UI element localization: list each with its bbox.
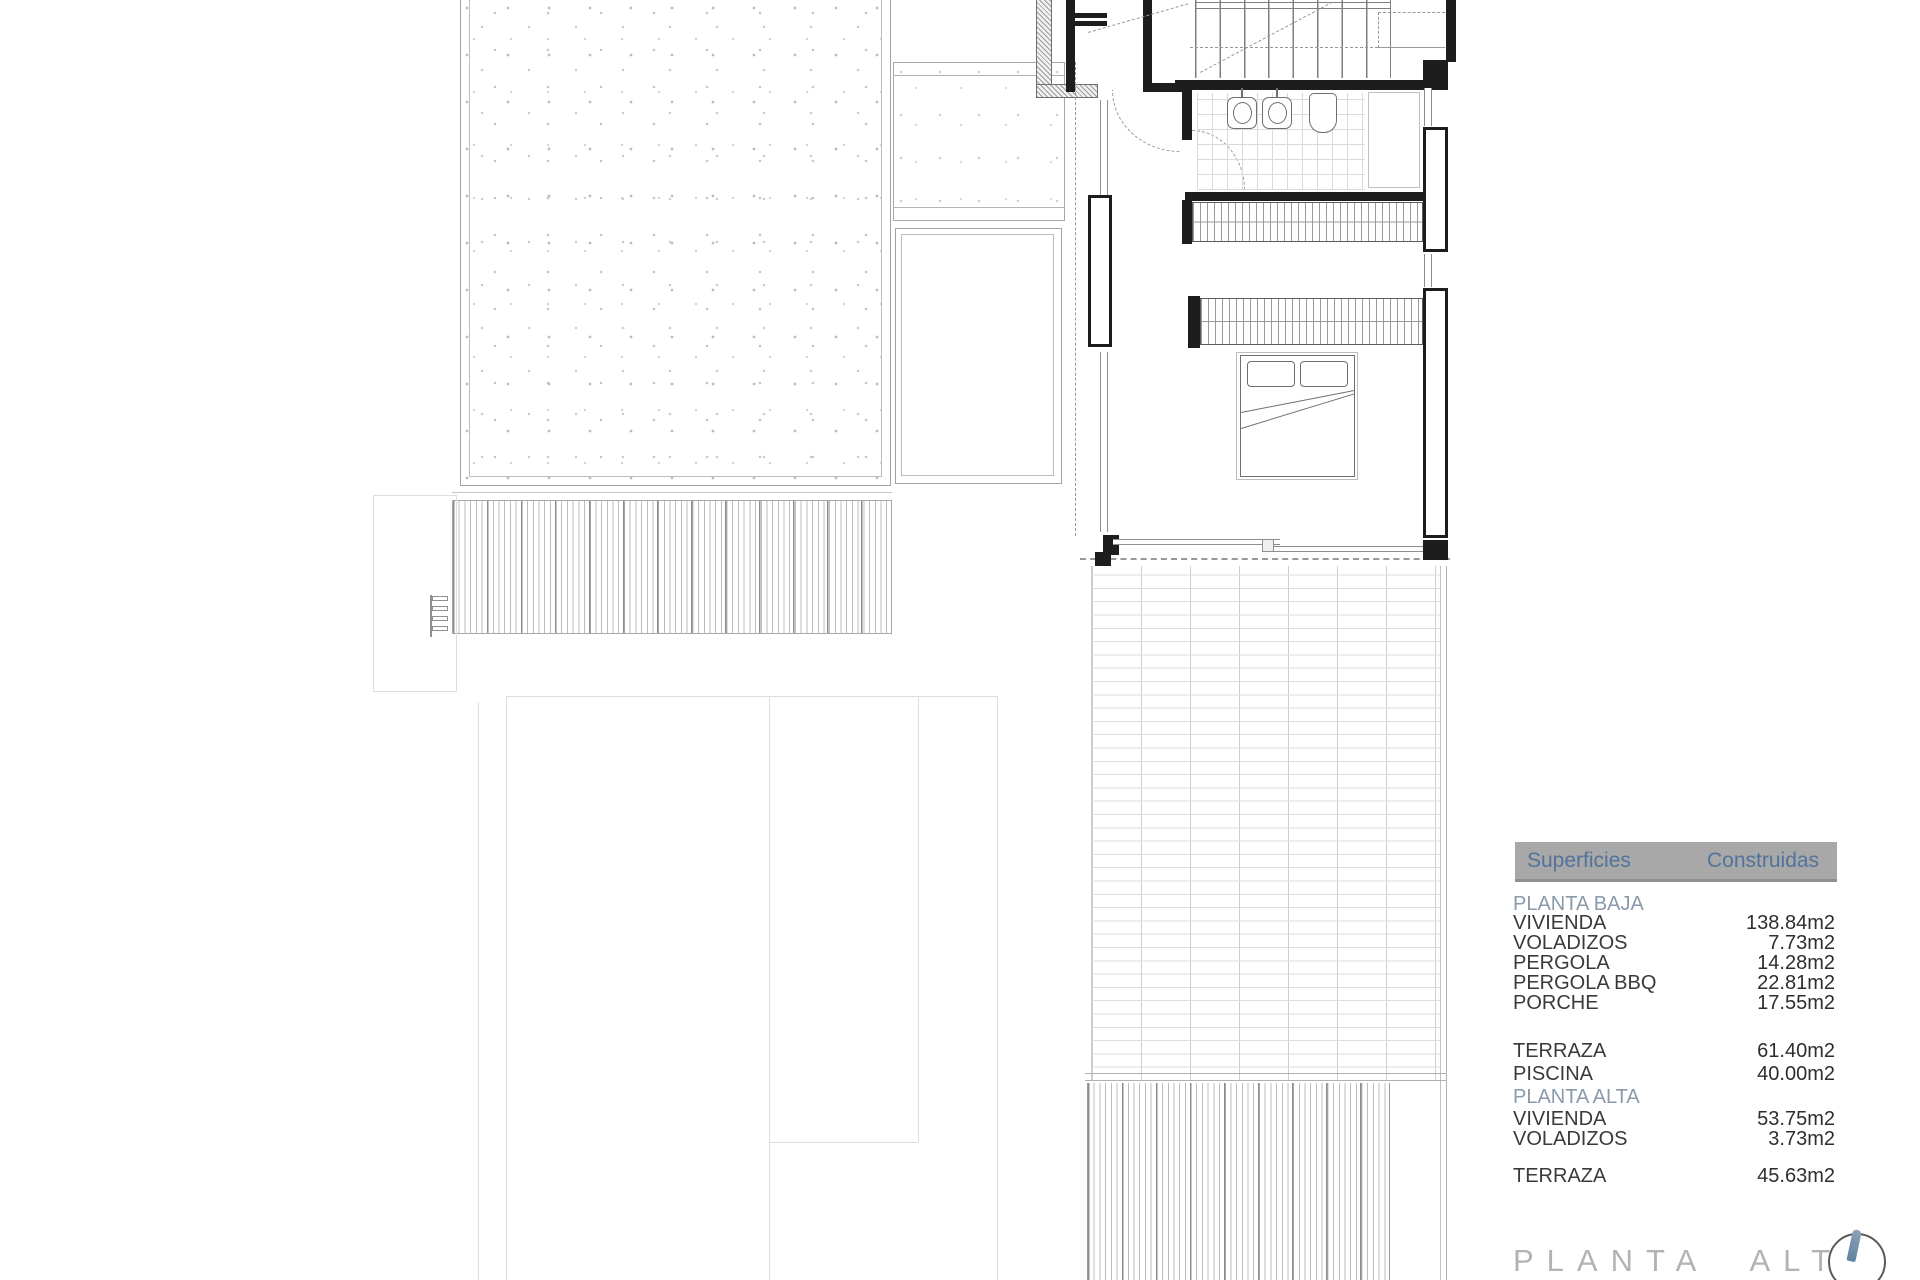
table-row: TERRAZA 45.63m2 [1513, 1165, 1837, 1185]
window-glazing [1424, 254, 1432, 287]
pergola-slats [452, 500, 892, 634]
stair-treads [1195, 0, 1391, 78]
surfaces-table-header: Superficies Construidas [1515, 842, 1837, 882]
wall [1182, 80, 1192, 140]
plan-title: PLANTA ALTA [1513, 1243, 1874, 1279]
terrace-edge [1440, 1081, 1447, 1280]
ground-floor-outline [769, 696, 770, 1280]
stair-void-outline [1378, 12, 1450, 48]
row-value: 17.55m2 [1757, 992, 1835, 1015]
terrace-overhang-dashed [1080, 558, 1450, 560]
wall [1188, 296, 1200, 348]
wall [1423, 60, 1448, 85]
overhang-dashed-line [1075, 62, 1076, 536]
wall [1185, 192, 1423, 201]
table-row: VOLADIZOS 3.73m2 [1513, 1128, 1837, 1148]
table-row: PERGOLA 14.28m2 [1513, 952, 1837, 972]
surfaces-column-label: Superficies [1527, 842, 1631, 879]
wall [1182, 200, 1192, 244]
row-label: TERRAZA [1513, 1165, 1606, 1188]
window-glazing [1100, 352, 1108, 532]
ground-floor-outline [918, 696, 919, 1142]
table-row: PERGOLA BBQ 22.81m2 [1513, 972, 1837, 992]
roof-break-line [1088, 3, 1188, 33]
ground-floor-outline [769, 1142, 918, 1143]
terrace-edge [1440, 566, 1447, 1081]
window-glazing [1424, 88, 1432, 126]
sliding-door-overlap [1262, 539, 1274, 552]
sink-tap [1276, 88, 1278, 97]
row-label: PLANTA ALTA [1513, 1086, 1640, 1109]
canopy-line-bottom [893, 207, 1065, 208]
sink [1227, 97, 1257, 129]
row-label: VOLADIZOS [1513, 1128, 1627, 1151]
wall [1075, 21, 1107, 26]
row-label: PORCHE [1513, 992, 1599, 1015]
table-row: PORCHE 17.55m2 [1513, 992, 1837, 1012]
wall [1446, 0, 1456, 62]
row-value: 61.40m2 [1757, 1040, 1835, 1063]
sliding-door-panel [1113, 539, 1280, 545]
table-section-row: PLANTA ALTA [1513, 1086, 1837, 1106]
gravel-roof-inner-border [469, 0, 882, 477]
wall [1423, 540, 1448, 560]
wall-panel [1088, 195, 1112, 347]
pergola-edge-line [452, 492, 892, 493]
terrace-tiled-floor [1091, 566, 1440, 1081]
sliding-door-panel [1262, 546, 1424, 552]
row-value: 45.63m2 [1757, 1165, 1835, 1188]
toilet [1309, 93, 1337, 133]
construidas-column-label: Construidas [1707, 842, 1819, 879]
wall [1066, 0, 1075, 92]
ground-floor-outline [373, 495, 457, 692]
shower-enclosure [1368, 92, 1420, 188]
table-section-row: PLANTA BAJA [1513, 893, 1837, 913]
deck-edge-line [1085, 1073, 1447, 1081]
wall [1075, 13, 1107, 18]
ground-floor-outline [997, 696, 998, 1280]
surfaces-table-body: PLANTA BAJA VIVIENDA 138.84m2 VOLADIZOS … [1513, 893, 1837, 1193]
table-row: TERRAZA 61.40m2 [1513, 1040, 1837, 1060]
wall-pillar [1423, 288, 1448, 538]
wall-pillar [1423, 127, 1448, 252]
ground-floor-outline [506, 696, 997, 697]
wardrobe [1192, 202, 1423, 242]
floorplan-sheet: Superficies Construidas PLANTA BAJA VIVI… [0, 0, 1920, 1280]
wall [1175, 80, 1448, 90]
ground-floor-outline [478, 702, 479, 1280]
ground-floor-outline [506, 696, 507, 1280]
row-value: 40.00m2 [1757, 1063, 1835, 1086]
table-row: VIVIENDA 53.75m2 [1513, 1108, 1837, 1128]
sink-tap [1241, 88, 1243, 97]
sink [1262, 97, 1292, 129]
row-value: 3.73m2 [1768, 1128, 1835, 1151]
table-row: PISCINA 40.00m2 [1513, 1063, 1837, 1083]
table-row: VIVIENDA 138.84m2 [1513, 912, 1837, 932]
timber-deck [1087, 1083, 1390, 1280]
stair-handrail [1195, 2, 1391, 9]
window-glazing [1100, 100, 1108, 196]
pillow [1300, 361, 1348, 387]
table-row: VOLADIZOS 7.73m2 [1513, 932, 1837, 952]
wardrobe [1200, 298, 1423, 345]
row-label: PISCINA [1513, 1063, 1593, 1086]
wall [1095, 552, 1111, 566]
flat-roof-inner-border [901, 234, 1054, 476]
pillow [1247, 361, 1295, 387]
row-label: TERRAZA [1513, 1040, 1606, 1063]
door-swing-arc [1112, 90, 1180, 152]
